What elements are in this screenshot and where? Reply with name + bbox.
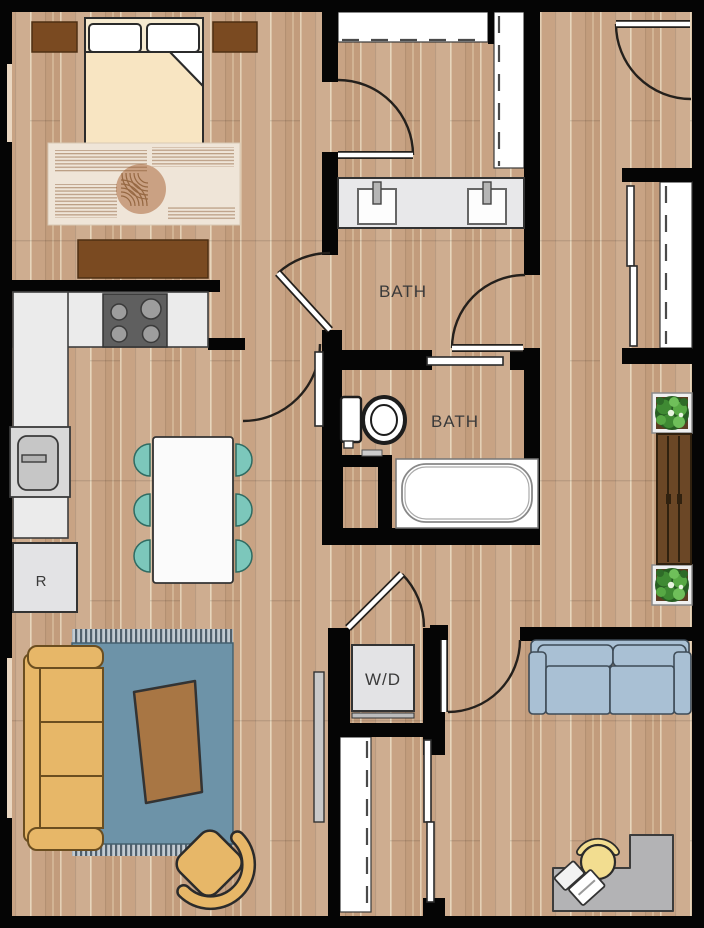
- sofa-cushion: [40, 722, 103, 776]
- toilet: [341, 397, 405, 448]
- loveseat-armrest: [674, 652, 691, 714]
- stove: [103, 294, 167, 347]
- bedroom2-closet-slider: [424, 740, 431, 822]
- floor-plan: R BATH: [0, 0, 704, 928]
- entry-closet-slider: [627, 186, 634, 266]
- entry-closet-slider: [630, 266, 637, 346]
- loveseat-cushion: [546, 666, 610, 714]
- sofa-armrest: [28, 828, 103, 850]
- wall-segment: [622, 348, 692, 364]
- sofa-armrest: [28, 646, 103, 668]
- wall-segment: [378, 455, 392, 528]
- washer-dryer-label: W/D: [365, 670, 401, 689]
- wall-segment: [688, 0, 704, 12]
- dining-table: [153, 437, 233, 583]
- bath2-label: BATH: [431, 412, 479, 431]
- vanity: [338, 178, 524, 228]
- living-room-window: [7, 658, 12, 818]
- potted-plant: [652, 565, 692, 605]
- pillow: [147, 24, 199, 52]
- faucet: [373, 182, 381, 204]
- hall-pocket-door: [315, 352, 323, 426]
- bedroom-rug: [48, 143, 240, 225]
- loveseat: [529, 640, 691, 714]
- loveseat-cushion: [610, 666, 674, 714]
- bathtub: [396, 459, 538, 528]
- bedroom2-closet-slider: [427, 822, 434, 902]
- nightstand-left: [32, 22, 77, 52]
- kitchen-sink: [10, 427, 70, 497]
- floor-plan-drawing: R BATH: [0, 0, 704, 928]
- wall-segment: [322, 12, 338, 82]
- coffee-table: [134, 681, 202, 803]
- sofa-cushion: [40, 668, 103, 722]
- dresser: [78, 240, 208, 278]
- wall-segment: [524, 12, 540, 275]
- wall-segment: [322, 152, 338, 255]
- wall-segment: [322, 350, 432, 370]
- bench: [657, 434, 691, 564]
- wall-segment: [488, 12, 494, 44]
- sofa: [24, 646, 103, 850]
- hallway: [652, 393, 692, 605]
- bedroom2-closet-shelf: [340, 737, 371, 912]
- wall-segment: [328, 628, 350, 737]
- tv: [314, 672, 324, 822]
- nightstand-right: [213, 22, 257, 52]
- bedroom-window: [7, 64, 12, 142]
- wall-segment: [328, 723, 445, 737]
- towel-bar: [362, 450, 382, 456]
- wall-segment: [328, 723, 340, 928]
- counter-left-run: [13, 292, 68, 538]
- laundry-closet: W/D: [352, 645, 414, 718]
- pillow: [89, 24, 141, 52]
- wall-segment: [322, 528, 540, 545]
- wall-segment: [208, 338, 245, 350]
- bath2-pocket-door: [427, 357, 503, 365]
- faucet: [483, 182, 491, 204]
- potted-plant: [652, 393, 692, 433]
- entry-closet-shelf: [660, 182, 692, 348]
- sofa-cushion: [40, 776, 103, 828]
- wall-segment: [0, 0, 616, 12]
- loveseat-armrest: [529, 652, 546, 714]
- wall-segment: [622, 168, 692, 182]
- wall-segment: [12, 280, 220, 292]
- wall-segment: [520, 627, 692, 641]
- bath1-label: BATH: [379, 282, 427, 301]
- rug-fringe: [72, 629, 233, 643]
- hall-closet-shelf: [338, 12, 488, 42]
- faucet: [22, 455, 46, 462]
- refrigerator: R: [13, 543, 77, 612]
- refrigerator-label: R: [36, 573, 47, 590]
